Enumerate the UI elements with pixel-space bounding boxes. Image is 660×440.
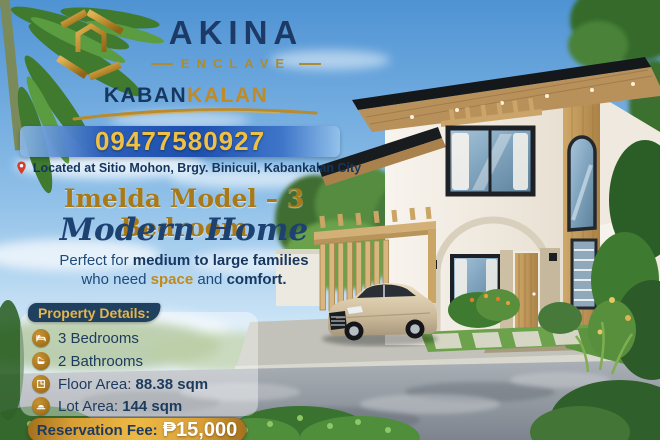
detail-row-floor-area: Floor Area: 88.38 sqm — [32, 374, 262, 394]
phone-banner: 09477580927 — [20, 126, 340, 157]
tagline-rule-left — [151, 63, 173, 65]
floor-area-value: 88.38 sqm — [136, 376, 209, 393]
bedrooms-text: 3 Bedrooms — [58, 330, 139, 347]
floor-area-label: Floor Area: — [58, 376, 136, 393]
location-line: Located at Sitio Mohon, Brgy. Binicuil, … — [8, 160, 368, 176]
gold-swoosh — [70, 106, 320, 122]
floor-plan-icon — [32, 375, 50, 393]
bathrooms-text: 2 Bathrooms — [58, 353, 143, 370]
desc-part6: comfort. — [227, 271, 287, 288]
lot-area-label: Lot Area: — [58, 398, 122, 415]
detail-row-lot-area: Lot Area: 144 sqm — [32, 396, 262, 416]
map-pin-icon — [15, 160, 28, 176]
desc-part4: space — [151, 271, 194, 288]
lot-area-icon — [32, 397, 50, 415]
reservation-banner: Reservation Fee: ₱15,000 — [28, 418, 246, 440]
details-header: Property Details: — [38, 305, 150, 321]
description: Perfect for medium to large families who… — [12, 252, 356, 289]
reservation-label: Reservation Fee: — [37, 422, 158, 439]
city-part1: KABAN — [104, 84, 187, 107]
bathtub-icon — [32, 352, 50, 370]
address-text: Located at Sitio Mohon, Brgy. Binicuil, … — [33, 161, 361, 175]
city-name: KABANKALAN — [10, 84, 362, 108]
desc-part5: and — [193, 271, 226, 288]
script-subtitle: Modern Home — [2, 212, 366, 248]
tagline-text: ENCLAVE — [181, 56, 291, 71]
front-door — [514, 252, 539, 334]
brand-tagline: ENCLAVE — [130, 56, 342, 71]
lot-area-value: 144 sqm — [122, 398, 182, 415]
floor-area-text: Floor Area: 88.38 sqm — [58, 376, 208, 393]
details-header-banner: Property Details: — [27, 303, 160, 322]
reservation-value: ₱15,000 — [163, 419, 238, 440]
desc-part1: Perfect for — [59, 252, 132, 269]
tagline-rule-right — [299, 63, 321, 65]
detail-row-bedrooms: 3 Bedrooms — [32, 328, 262, 348]
desc-part2: medium to large families — [133, 252, 309, 269]
main-window — [448, 128, 533, 194]
brand-block: AKINA ENCLAVE — [52, 6, 342, 84]
desc-part3: who need — [81, 271, 150, 288]
flyer: AKINA ENCLAVE KABANKALAN 09477580927 Loc… — [0, 0, 660, 440]
phone-number: 09477580927 — [95, 126, 265, 157]
lot-area-text: Lot Area: 144 sqm — [58, 398, 182, 415]
bed-icon — [32, 329, 50, 347]
akina-logo-icon — [54, 8, 128, 80]
city-part2: KALAN — [187, 84, 268, 107]
brand-name: AKINA — [130, 14, 342, 52]
detail-row-bathrooms: 2 Bathrooms — [32, 351, 262, 371]
